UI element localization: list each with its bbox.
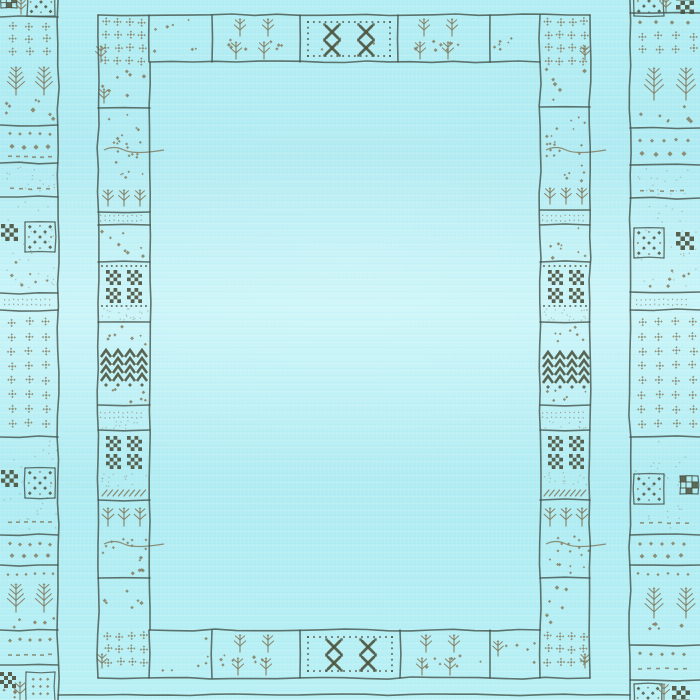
panel-top-border-scatter-1 (153, 19, 197, 53)
panel-right-inner-strip-divider-1 (542, 215, 584, 222)
panel-top-border-sprigs-2 (414, 18, 460, 59)
rug-motifs-svg (0, 0, 700, 700)
panel-right-inner-strip-scatter (549, 227, 587, 260)
panel-left-inner-strip-vine-trees (103, 114, 164, 206)
panel-right-outer-column-speckle-1 (638, 168, 689, 195)
panel-left-outer-column-bottom-partial-squares (0, 672, 55, 700)
panel-bottom-border-corner-right (543, 585, 590, 668)
panel-right-outer-column-diamond-rows-1 (638, 138, 690, 157)
panel-bottom-border-scatter-2 (493, 640, 536, 664)
panel-bottom-border-sprigs-1 (219, 634, 273, 675)
panel-top-border-scatter-2 (493, 37, 513, 51)
panel-bottom-border-sprigs-2 (416, 634, 481, 675)
panel-left-inner-strip-scatter (100, 230, 145, 259)
panel-top-border-corner-left (96, 17, 147, 103)
rug-panels (0, 0, 699, 700)
panel-left-inner-strip-chevron-columns (101, 325, 147, 404)
panel-left-inner-strip-divider-1 (100, 215, 142, 222)
panel-top-border-corner-right (543, 17, 590, 101)
panel-right-outer-column-diamond-rows-2 (638, 542, 686, 559)
panel-left-outer-column-dots-trees-bottom (6, 572, 55, 629)
panel-left-outer-column-top-partial-squares (1, 0, 55, 16)
panel-right-inner-strip-checkers-1 (543, 265, 588, 321)
panel-right-inner-strip-trees-vine (544, 507, 606, 574)
panel-right-outer-column-dots-trees-top (638, 20, 698, 124)
rug-photo: Light turquoise hand-knotted gabbeh-styl… (0, 0, 700, 700)
panel-right-inner-strip-divider-2 (542, 412, 586, 429)
panel-left-inner-strip-trees-vine (102, 507, 164, 575)
panel-left-inner-strip-checkers-2 (102, 436, 147, 496)
panel-bottom-border-xcross-panel (307, 636, 393, 672)
panel-left-outer-column-dots-trees-top (5, 22, 56, 121)
panel-left-outer-column-squares-2 (1, 440, 57, 529)
panel-right-outer-column-diamond-rows-3 (638, 651, 687, 670)
panel-right-outer-column-top-partial-squares (634, 0, 694, 17)
panel-left-inner-strip-checkers-1 (101, 265, 149, 320)
panel-right-outer-column-divider-dots (636, 299, 687, 306)
panel-top-border-sprigs-1 (227, 18, 283, 59)
panel-left-outer-column-diamond-rows-3 (8, 637, 52, 656)
panel-right-outer-column-bottom-partial-squares (634, 683, 690, 700)
panel-left-outer-column-divider-dots (4, 299, 50, 306)
panel-right-inner-strip-chevron-columns (543, 326, 589, 403)
panel-top-border-xcross-panel (307, 21, 391, 57)
panel-left-outer-column-squares-1 (1, 201, 56, 288)
panel-right-inner-strip-vine-trees (545, 116, 606, 204)
panel-left-outer-column-speckle-1 (7, 167, 55, 192)
panel-left-outer-column-diamond-rows-2 (8, 541, 52, 558)
panel-left-inner-strip-divider-2 (100, 412, 142, 430)
panel-left-outer-column-plus-grid (7, 317, 51, 428)
panel-right-inner-strip-checkers-2 (544, 436, 587, 496)
panel-bottom-border-scatter-1 (161, 637, 209, 672)
panel-bottom-border-corner-left (97, 589, 148, 668)
panel-left-outer-column-diamond-rows-1 (8, 132, 52, 159)
rug-field-background (0, 0, 700, 700)
panel-right-outer-column-dots-trees-bottom (636, 572, 695, 631)
panel-right-outer-column-squares-2 (633, 441, 699, 529)
panel-right-outer-column-plus-grid (637, 317, 698, 429)
panel-right-outer-column-squares-1 (634, 206, 697, 289)
